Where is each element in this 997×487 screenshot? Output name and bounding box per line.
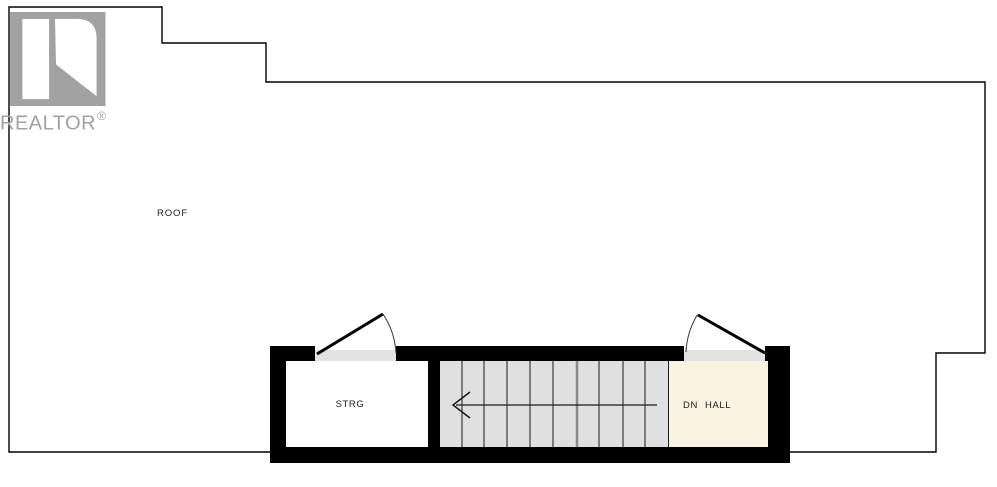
hall-label: HALL — [705, 400, 731, 411]
realtor-wordmark: REALTOR — [0, 113, 96, 135]
floor-plan-page: ROOF STRG DN HALL REALTOR® — [0, 0, 997, 487]
floor-plan-drawing — [0, 0, 997, 487]
storage-door-threshold — [315, 350, 396, 361]
hall-door-threshold — [684, 350, 765, 361]
stairs-area — [440, 361, 668, 447]
realtor-r-icon — [9, 12, 106, 106]
roof-label: ROOF — [157, 208, 188, 219]
registered-trademark-icon: ® — [97, 109, 106, 123]
realtor-r-stem — [22, 19, 49, 99]
realtor-logo-text: REALTOR® — [0, 106, 105, 136]
stairs-down-label: DN — [683, 400, 698, 411]
storage-label: STRG — [330, 399, 370, 410]
realtor-logo-block — [9, 12, 106, 106]
realtor-logo: REALTOR® — [0, 0, 130, 140]
